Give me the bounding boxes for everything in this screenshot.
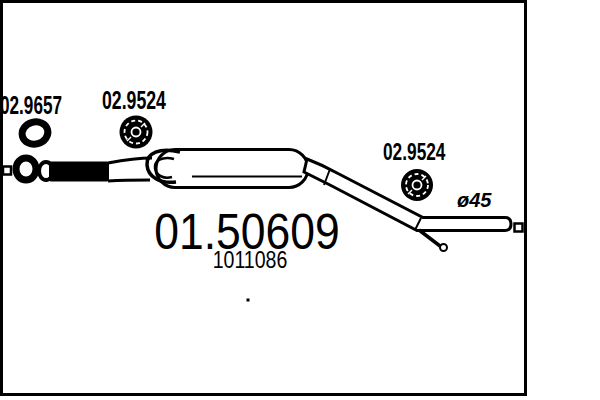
exhaust-drawing-canvas [0, 0, 600, 400]
muffler-body [147, 150, 308, 188]
rubber-mount-left-ref-label: 02.9524 [102, 87, 166, 113]
hanger-hook [419, 230, 447, 251]
pipe-diameter-label: ø45 [457, 190, 491, 210]
inlet-cut-marker [3, 167, 11, 175]
rubber-mount-right-ref-label: 02.9524 [383, 140, 445, 164]
center-dot [247, 299, 250, 302]
rubber-mount-right-icon [401, 169, 433, 201]
flange-icon [16, 158, 53, 180]
oe-number: 1011086 [165, 249, 335, 272]
gasket-icon [20, 119, 51, 147]
drawing-frame [2, 2, 526, 395]
flex-pipe [49, 162, 109, 182]
outlet-cut-marker [515, 224, 523, 232]
rubber-mount-left-icon [120, 116, 153, 149]
gasket-ref-label: 02.9657 [0, 92, 62, 118]
exhaust-part-drawing: 02.9657 02.9524 02.9524 ø45 01.50609 101… [0, 0, 600, 400]
